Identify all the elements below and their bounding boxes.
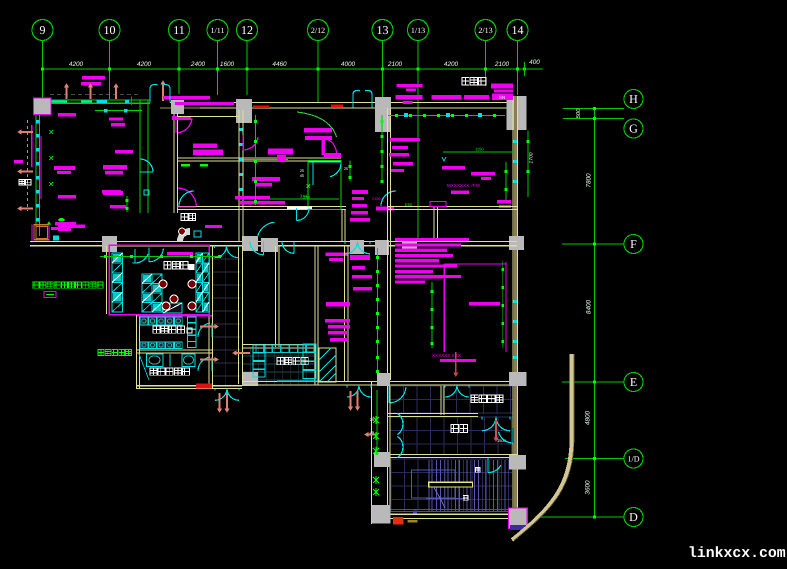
svg-text:2100: 2100	[372, 197, 380, 201]
svg-text:1150: 1150	[475, 147, 484, 152]
svg-text:4200: 4200	[444, 61, 459, 68]
svg-text:3X4: 3X4	[300, 194, 308, 199]
svg-text:D: D	[629, 510, 638, 524]
svg-text:E50: E50	[405, 202, 413, 207]
svg-text:400: 400	[529, 59, 540, 66]
svg-text:4200: 4200	[137, 61, 152, 68]
svg-text:linkxcx.com: linkxcx.com	[688, 546, 786, 562]
svg-text:25: 25	[300, 169, 304, 173]
svg-text:SN: SN	[499, 95, 505, 100]
svg-text:2/13: 2/13	[478, 26, 492, 35]
svg-text:1600: 1600	[220, 61, 235, 68]
svg-text:2400: 2400	[190, 61, 206, 68]
svg-text:13: 13	[377, 23, 389, 37]
svg-text:4460: 4460	[272, 61, 287, 68]
svg-text:1/11: 1/11	[211, 26, 225, 35]
svg-text:2100: 2100	[387, 61, 403, 68]
svg-text:H: H	[629, 92, 638, 106]
svg-text:7800: 7800	[586, 173, 593, 188]
svg-text:10: 10	[104, 23, 116, 37]
svg-text:4200: 4200	[69, 61, 84, 68]
svg-text:1/D: 1/D	[628, 455, 640, 464]
svg-text:9: 9	[40, 23, 46, 37]
svg-text:4000: 4000	[341, 61, 356, 68]
svg-text:8400: 8400	[586, 299, 593, 314]
svg-text:14: 14	[512, 23, 524, 37]
svg-text:12: 12	[241, 23, 253, 37]
svg-text:4800: 4800	[585, 410, 592, 425]
svg-text:11: 11	[173, 23, 185, 37]
svg-text:45: 45	[300, 174, 304, 178]
svg-text:2/12: 2/12	[311, 26, 325, 35]
svg-text:E: E	[630, 375, 637, 389]
svg-text:MXXXXXX 7FM: MXXXXXX 7FM	[447, 183, 480, 188]
svg-text:1/13: 1/13	[411, 26, 425, 35]
svg-text:G: G	[629, 122, 638, 136]
svg-text:1700: 1700	[529, 152, 535, 163]
svg-text:2100: 2100	[494, 61, 510, 68]
svg-text:3600: 3600	[585, 480, 592, 495]
svg-text:F: F	[630, 237, 637, 251]
svg-text:25: 25	[344, 167, 348, 171]
svg-text:500: 500	[575, 108, 582, 118]
